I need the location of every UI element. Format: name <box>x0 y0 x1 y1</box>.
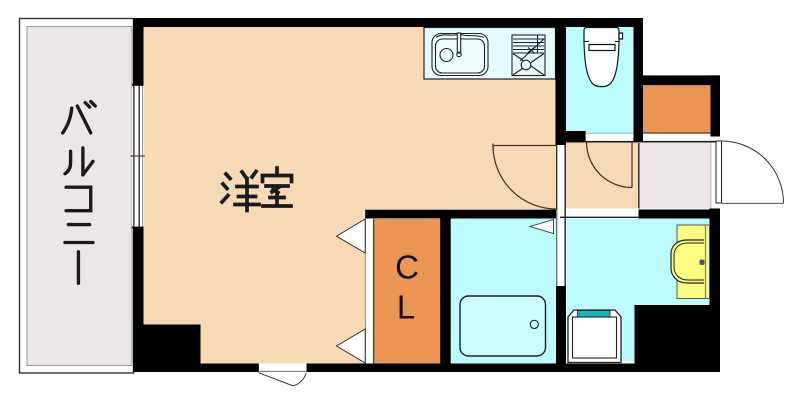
svg-text:C: C <box>395 249 419 286</box>
svg-text:L: L <box>397 289 415 326</box>
